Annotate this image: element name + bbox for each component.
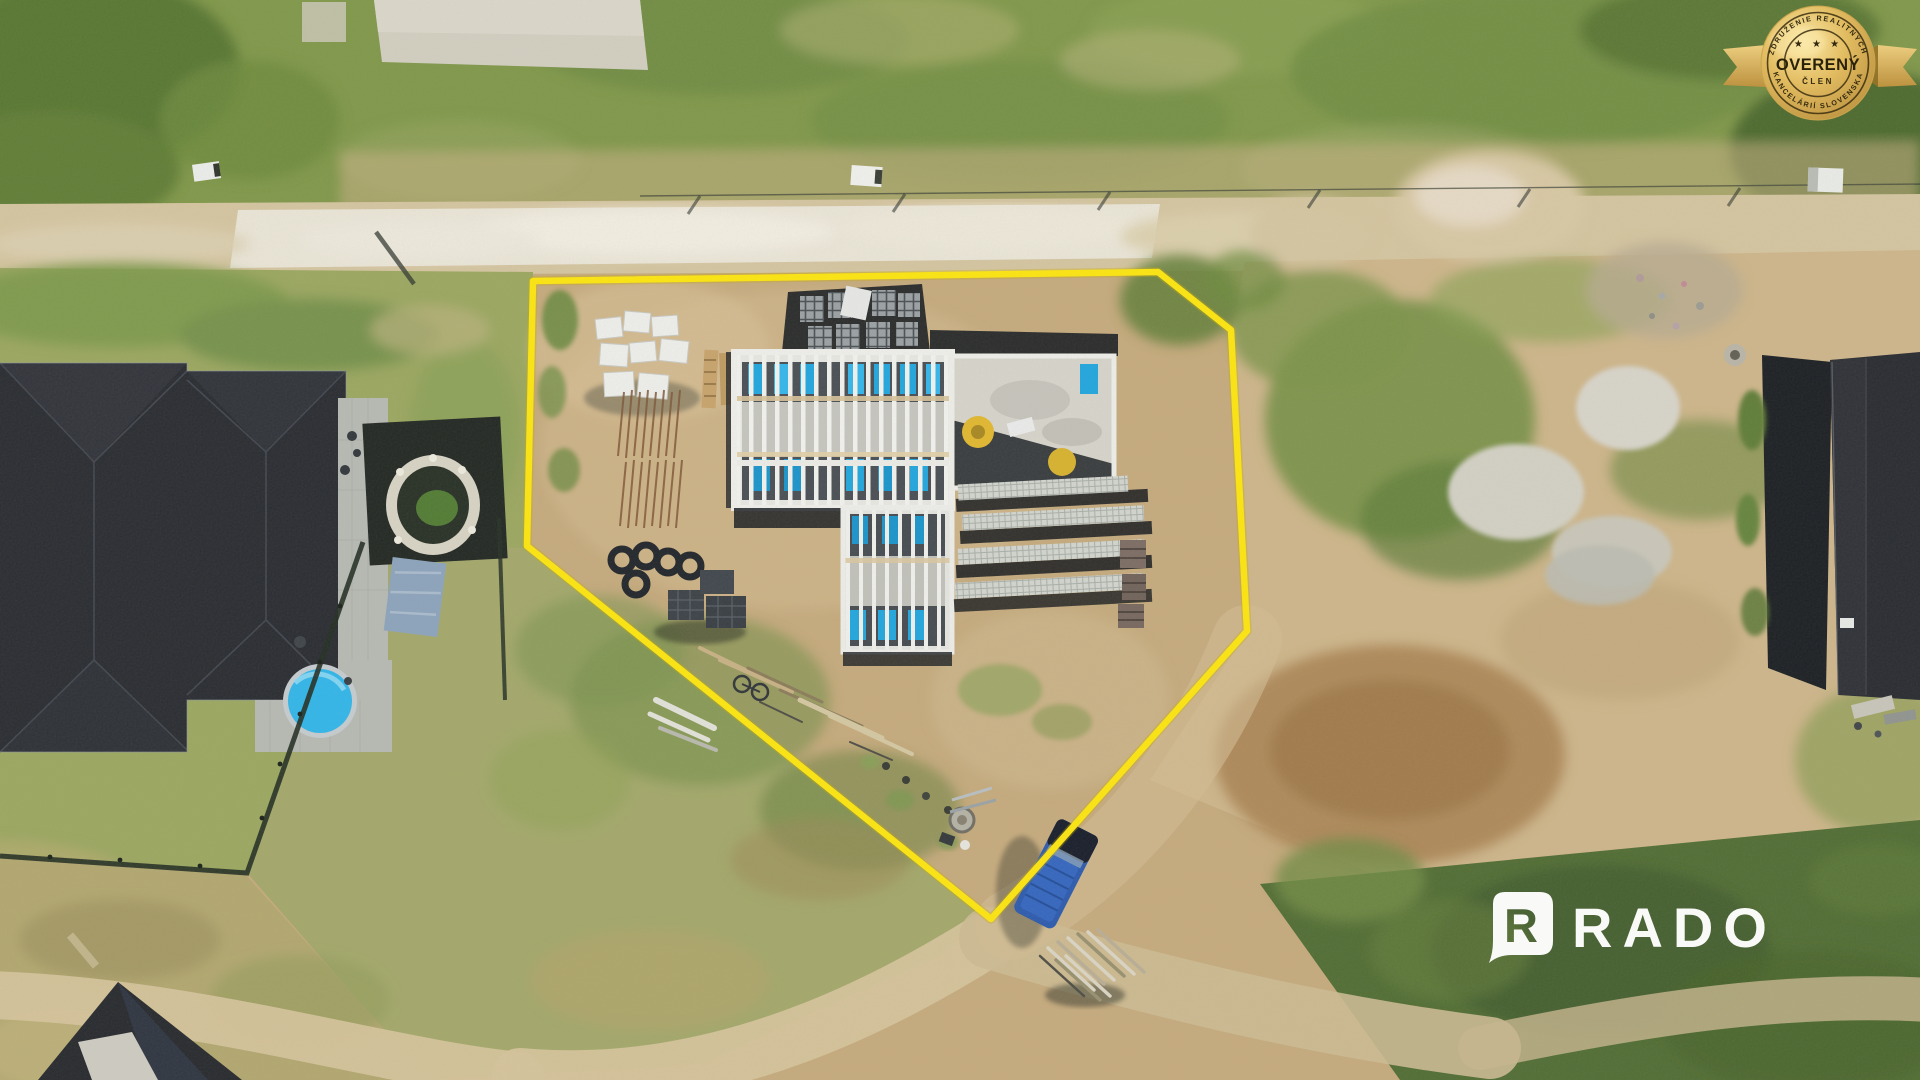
rado-logo-icon [1489,892,1553,963]
rado-logo-text: RADO [1572,896,1777,959]
badge-stars: ★ ★ ★ [1794,39,1842,50]
badge-title: OVERENÝ [1776,55,1860,74]
scene-canvas: R [0,0,1920,1080]
aerial-photo: R [0,0,1920,1080]
rado-watermark: RADO [1489,892,1777,963]
badge-subtitle: ČLEN [1802,77,1834,86]
